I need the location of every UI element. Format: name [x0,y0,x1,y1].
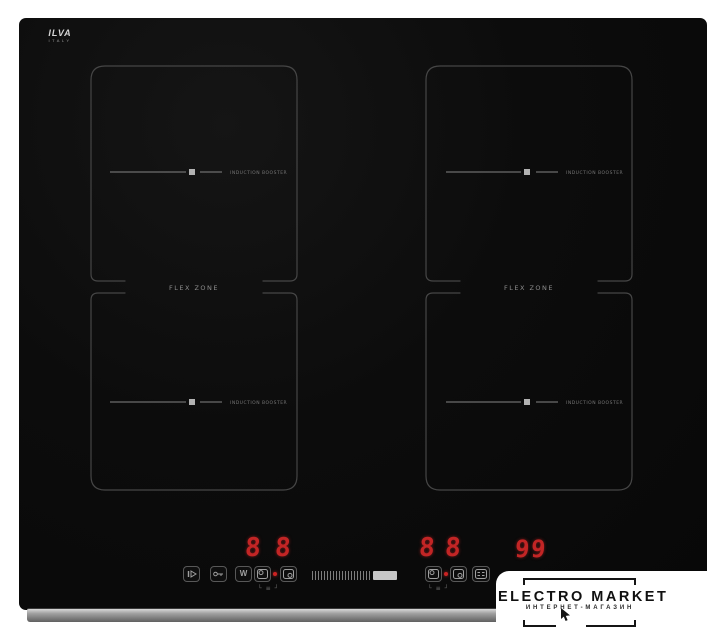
led-digit: 9 [514,537,530,561]
right-zone-display: 8 8 [419,536,460,560]
induction-hob-glass: FLEX ZONE FLEX ZONE INDUCTION BOOSTER IN… [19,18,707,610]
led-digit: 9 [531,537,547,561]
flex-select-right-front-button[interactable] [450,566,467,582]
flex-bridge-marks-left: └≡┘ [258,585,282,592]
child-lock-button[interactable] [210,566,227,582]
burner-dot-rear-left [189,169,195,175]
flex-select-left-rear-button[interactable] [254,566,271,582]
zone-rear-icon [257,569,268,579]
flex-zone-label-right: FLEX ZONE [504,284,554,292]
led-digit: 8 [274,536,291,560]
zone-active-led [273,572,277,576]
brand-logo: ILVA ITALY [37,29,83,43]
flex-select-right-rear-button[interactable] [425,566,442,582]
pause-button[interactable] [183,566,200,582]
led-digit: 8 [444,536,461,560]
product-photo: FLEX ZONE FLEX ZONE INDUCTION BOOSTER IN… [0,0,721,640]
slider-handle[interactable] [373,571,397,580]
booster-label-rear-left: INDUCTION BOOSTER [230,170,287,176]
led-digit: 8 [418,536,435,560]
burner-dot-front-right [524,399,530,405]
pause-icon [187,570,197,578]
flex-zone-label-left: FLEX ZONE [169,284,219,292]
brand-name: ILVA [37,29,83,38]
brand-country: ITALY [37,39,83,43]
timer-button[interactable] [472,566,490,582]
zone-outline-front-left [91,293,297,490]
key-lock-icon [213,570,224,578]
zone-active-led [444,572,448,576]
flex-select-left-front-button[interactable] [280,566,297,582]
slider-ticks [312,571,372,580]
flex-bridge-marks-right: └≡┘ [428,585,452,592]
zone-rear-icon [428,569,439,579]
burner-dot-front-left [189,399,195,405]
cursor-arrow-icon [560,608,572,622]
timer-display: 9 9 [515,537,546,561]
watermark-subtitle: ИНТЕРНЕТ-МАГАЗИН [498,605,662,611]
left-zone-display: 8 8 [245,536,290,560]
zone-front-icon [453,569,464,579]
timer-icon [475,569,487,579]
cooking-zones-artwork: FLEX ZONE FLEX ZONE INDUCTION BOOSTER IN… [19,18,707,610]
store-watermark: ELECTRO MARKET ИНТЕРНЕТ-МАГАЗИН [496,571,721,640]
booster-label-rear-right: INDUCTION BOOSTER [566,170,623,176]
keep-warm-icon: W [240,570,248,578]
keep-warm-button[interactable]: W [235,566,252,582]
booster-label-front-right: INDUCTION BOOSTER [566,400,623,406]
zone-front-icon [283,569,294,579]
zone-outline-front-right [426,293,632,490]
power-slider[interactable] [312,571,397,580]
watermark-title: ELECTRO MARKET [498,589,662,605]
burner-dot-rear-right [524,169,530,175]
led-digit: 8 [244,536,261,560]
booster-label-front-left: INDUCTION BOOSTER [230,400,287,406]
